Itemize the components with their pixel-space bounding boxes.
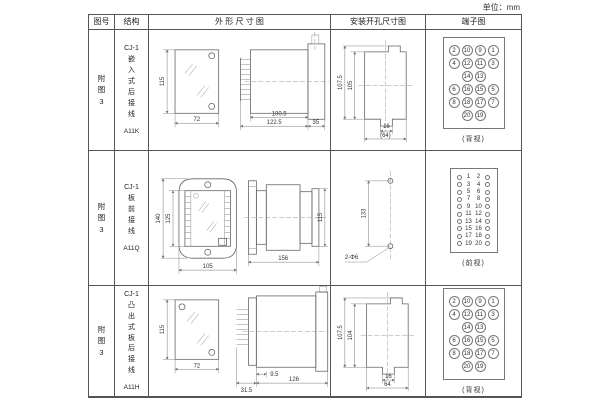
terminal-hole-icon: [485, 204, 490, 209]
terminal-caption: (前视): [462, 258, 485, 268]
terminal-pin: 3: [488, 309, 499, 320]
cell-terminal-diagram-r2: 1 2 3 4 5 6 7 8: [426, 151, 521, 286]
terminal-pin: 10: [474, 204, 484, 210]
terminal-pin: 5: [488, 84, 499, 95]
cell-structure-r2: CJ-1 板前接线 A11Q: [115, 151, 149, 286]
cell-install-diagram-r1: 107.5 105 16 (64): [331, 30, 426, 151]
install-drawing-r3: 107.5 104 16 64: [331, 286, 425, 396]
header-terminal: 端子图: [426, 15, 521, 30]
terminal-pin: 4: [474, 182, 484, 188]
terminal-hole-icon: [485, 226, 490, 231]
fig-no-label: 附图3: [98, 324, 106, 359]
terminal-pin: 11: [475, 309, 486, 320]
dim-label: 9.5: [270, 372, 279, 378]
terminal-pair-list: 1 2 3 4 5 6 7 8: [456, 174, 492, 248]
structure-series: CJ-1: [124, 291, 139, 298]
terminal-hole-icon: [457, 234, 462, 239]
terminal-pin: 2: [474, 174, 484, 180]
terminal-pin: 16: [462, 84, 473, 95]
terminal-hole-icon: [457, 212, 462, 217]
header-structure: 结构: [115, 15, 149, 30]
terminal-pin: 14: [462, 322, 473, 333]
structure-desc: 嵌入式后接线: [128, 55, 135, 120]
terminal-hole-icon: [457, 182, 462, 187]
terminal-pin: 12: [462, 58, 473, 69]
terminal-hole-icon: [485, 234, 490, 239]
terminal-pair-row: 13 14: [456, 218, 492, 225]
terminal-pin: 11: [464, 211, 474, 217]
dim-label: 107.5: [338, 324, 344, 340]
terminal-pin: 19: [464, 241, 474, 247]
outline-drawing-r1: 115 72 100.5 122.5 35: [149, 30, 330, 150]
terminal-pin: 7: [464, 196, 474, 202]
terminal-pin: 4: [449, 58, 460, 69]
terminal-pin: 14: [474, 219, 484, 225]
terminal-pin: 5: [488, 335, 499, 346]
dim-label: 16: [383, 124, 390, 130]
terminal-pin: 1: [488, 296, 499, 307]
dim-label: 2-Φ6: [345, 255, 359, 261]
terminal-pin: 15: [475, 335, 486, 346]
terminal-pin: 17: [475, 348, 486, 359]
terminal-hole-icon: [457, 219, 462, 224]
terminal-pin: 10: [462, 45, 473, 56]
dim-label: 100.5: [272, 111, 288, 117]
dim-label: (64): [380, 133, 391, 139]
terminal-pin: 12: [462, 309, 473, 320]
fig-no-label: 附图3: [98, 73, 106, 108]
dim-label: 156: [278, 256, 289, 262]
cell-structure-r1: CJ-1 嵌入式后接线 A11K: [115, 30, 149, 151]
terminal-hole-icon: [485, 190, 490, 195]
cell-fig-no-r1: 附图3: [89, 30, 115, 151]
terminal-grid: 2109141211314136161558181772019: [448, 295, 500, 373]
terminal-pin: 8: [449, 348, 460, 359]
terminal-pair-row: 17 18: [456, 233, 492, 240]
dim-label: 122.5: [267, 120, 283, 126]
structure-series: CJ-1: [124, 45, 139, 52]
terminal-pin: 9: [464, 204, 474, 210]
header-outline: 外 形 尺 寸 图: [149, 15, 331, 30]
terminal-pin: 3: [464, 182, 474, 188]
terminal-hole-icon: [457, 226, 462, 231]
terminal-pair-row: 11 12: [456, 211, 492, 218]
terminal-hole-icon: [485, 197, 490, 202]
cell-outline-diagram-r2: 140 125 105 156 115: [149, 151, 331, 286]
structure-desc: 凸出式板后接线: [128, 301, 135, 377]
terminal-pin: 19: [475, 110, 486, 121]
terminal-pin: 12: [474, 211, 484, 217]
terminal-hole-icon: [485, 182, 490, 187]
terminal-pair-row: 5 6: [456, 188, 492, 195]
dim-label: 104: [348, 330, 354, 341]
outline-drawing-r2: 140 125 105 156 115: [149, 151, 330, 285]
terminal-pin: 7: [488, 348, 499, 359]
terminal-hole-icon: [485, 241, 490, 246]
cell-terminal-diagram-r1: 2109141211314136161558181772019 (背视): [426, 30, 521, 151]
terminal-pair-row: 7 8: [456, 196, 492, 203]
dim-label: 125: [166, 213, 172, 224]
terminal-hole-icon: [457, 197, 462, 202]
terminal-pin: 20: [474, 241, 484, 247]
terminal-pin: 1: [464, 174, 474, 180]
cell-structure-r3: CJ-1 凸出式板后接线 A11H: [115, 286, 149, 397]
header-fig-no: 图号: [89, 15, 115, 30]
terminal-pin: 5: [464, 189, 474, 195]
terminal-pin: 8: [449, 97, 460, 108]
terminal-pair-row: 15 16: [456, 225, 492, 232]
terminal-pin: 9: [475, 296, 486, 307]
terminal-pin: 4: [449, 309, 460, 320]
terminal-pin: 13: [475, 71, 486, 82]
terminal-pin: 15: [475, 84, 486, 95]
fig-no-label: 附图3: [98, 201, 106, 236]
terminal-pin: 17: [464, 233, 474, 239]
dim-label: 64: [384, 382, 391, 388]
terminal-caption: (背视): [462, 385, 485, 395]
terminal-pin: 18: [474, 233, 484, 239]
terminal-hole-icon: [485, 175, 490, 180]
terminal-box: 1 2 3 4 5 6 7 8: [450, 168, 498, 254]
terminal-hole-icon: [457, 175, 462, 180]
terminal-pin: 19: [475, 361, 486, 372]
dim-label: 35: [313, 120, 320, 126]
terminal-caption: (背视): [462, 134, 485, 144]
dim-label: 126: [289, 377, 300, 383]
terminal-pin: 20: [462, 361, 473, 372]
terminal-pin: 20: [462, 110, 473, 121]
terminal-pin: 18: [462, 97, 473, 108]
dim-label: 72: [194, 117, 201, 123]
terminal-pin: 13: [464, 219, 474, 225]
document-canvas: { "unit_label": "单位：mm", "header": { "fi…: [0, 0, 600, 400]
terminal-pin: 1: [488, 45, 499, 56]
install-drawing-r2: 133 2-Φ6: [331, 151, 425, 285]
dim-label: 72: [194, 363, 201, 369]
cell-outline-diagram-r1: 115 72 100.5 122.5 35: [149, 30, 331, 151]
terminal-hole-icon: [457, 190, 462, 195]
terminal-box: 2109141211314136161558181772019: [443, 288, 505, 380]
dim-label: 105: [203, 264, 214, 270]
terminal-box: 2109141211314136161558181772019: [443, 37, 505, 129]
dim-label: 140: [156, 213, 162, 224]
terminal-pair-row: 1 2: [456, 174, 492, 181]
spec-table: 图号 结构 外 形 尺 寸 图 安装开孔尺寸图 端子图 附图3 CJ-1 嵌入式…: [88, 14, 522, 398]
header-install: 安装开孔尺寸图: [331, 15, 426, 30]
terminal-pin: 13: [475, 322, 486, 333]
terminal-pin: 14: [462, 71, 473, 82]
terminal-pair-row: 9 10: [456, 203, 492, 210]
terminal-pin: 15: [464, 226, 474, 232]
terminal-pin: 10: [462, 296, 473, 307]
dim-label: 107.5: [338, 74, 344, 90]
cell-outline-diagram-r3: 115 72 9.5 31.5 126: [149, 286, 331, 397]
terminal-pin: 9: [475, 45, 486, 56]
terminal-pin: 2: [449, 296, 460, 307]
cell-fig-no-r3: 附图3: [89, 286, 115, 397]
dim-label: 16: [385, 374, 392, 380]
structure-code: A11Q: [123, 245, 139, 252]
terminal-pin: 16: [474, 226, 484, 232]
dim-label: 31.5: [241, 388, 253, 394]
terminal-pin: 17: [475, 97, 486, 108]
dim-label: 115: [160, 76, 166, 86]
structure-series: CJ-1: [124, 184, 139, 191]
outline-drawing-r3: 115 72 9.5 31.5 126: [149, 286, 330, 396]
terminal-pin: 16: [462, 335, 473, 346]
terminal-hole-icon: [457, 241, 462, 246]
cell-install-diagram-r2: 133 2-Φ6: [331, 151, 426, 286]
cell-install-diagram-r3: 107.5 104 16 64: [331, 286, 426, 397]
cell-terminal-diagram-r3: 2109141211314136161558181772019 (背视): [426, 286, 521, 397]
terminal-hole-icon: [485, 212, 490, 217]
terminal-pin: 2: [449, 45, 460, 56]
terminal-pin: 11: [475, 58, 486, 69]
terminal-hole-icon: [485, 219, 490, 224]
dim-label: 115: [318, 212, 324, 222]
terminal-grid: 2109141211314136161558181772019: [448, 44, 500, 122]
unit-label: 单位：mm: [420, 2, 520, 13]
dim-label: 115: [160, 324, 166, 334]
terminal-pin: 6: [449, 84, 460, 95]
structure-code: A11H: [124, 384, 140, 391]
cell-fig-no-r2: 附图3: [89, 151, 115, 286]
terminal-pin: 3: [488, 58, 499, 69]
dim-label: 133: [362, 208, 368, 219]
terminal-pin: 7: [488, 97, 499, 108]
terminal-pair-row: 19 20: [456, 240, 492, 247]
terminal-hole-icon: [457, 204, 462, 209]
terminal-pin: 6: [474, 189, 484, 195]
dim-label: 105: [348, 80, 354, 91]
terminal-pin: 18: [462, 348, 473, 359]
install-drawing-r1: 107.5 105 16 (64): [331, 30, 425, 150]
structure-code: A11K: [124, 128, 139, 135]
structure-desc: 板前接线: [128, 194, 135, 237]
terminal-pin: 8: [474, 196, 484, 202]
terminal-pair-row: 3 4: [456, 181, 492, 188]
terminal-pin: 6: [449, 335, 460, 346]
